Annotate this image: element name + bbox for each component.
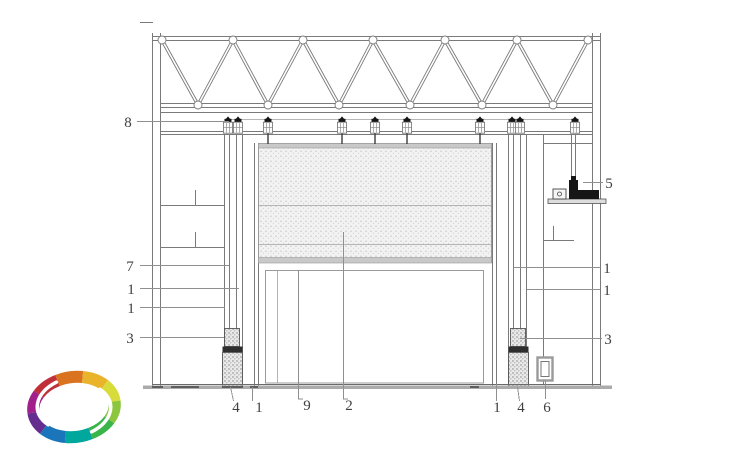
- elevation-drawing: 8 7 1 1 3 5 1 1 3 4 1 9 2 1 4 6: [0, 0, 736, 456]
- truss-diagonals: [162, 40, 588, 105]
- rainbow-ring-logo: [29, 372, 119, 443]
- drive-motor-unit: [548, 134, 606, 204]
- callout-label-6: 6: [543, 400, 551, 416]
- roof-truss: [152, 36, 601, 109]
- callout-label-1-right-a: 1: [603, 261, 611, 277]
- callout-label-1-bottom-left: 1: [255, 400, 263, 416]
- callout-label-7: 7: [126, 259, 134, 275]
- callout-label-1-right-b: 1: [603, 283, 611, 299]
- hanger-rods: [268, 134, 480, 145]
- callout-label-2: 2: [345, 398, 353, 414]
- right-buffer-block: [509, 329, 529, 387]
- left-buffer-block: [223, 329, 243, 387]
- callout-label-4-right: 4: [517, 400, 525, 416]
- callout-label-9: 9: [303, 398, 311, 414]
- floor-line: [143, 385, 612, 390]
- drawing-canvas: 8 7 1 1 3 5 1 1 3 4 1 9 2 1 4 6: [0, 0, 736, 456]
- callout-label-4-left: 4: [232, 400, 240, 416]
- truss-nodes: [158, 36, 592, 109]
- callout-label-8: 8: [124, 115, 132, 131]
- callout-label-3-left: 3: [126, 331, 134, 347]
- door-curtain-panel: [259, 144, 492, 264]
- callout-label-5: 5: [605, 176, 613, 192]
- callout-label-1-bottom-right: 1: [493, 400, 501, 416]
- callout-label-3-right: 3: [604, 332, 612, 348]
- floor-box: [538, 358, 553, 381]
- callout-label-1-left-a: 1: [127, 282, 135, 298]
- callout-label-1-left-b: 1: [127, 301, 135, 317]
